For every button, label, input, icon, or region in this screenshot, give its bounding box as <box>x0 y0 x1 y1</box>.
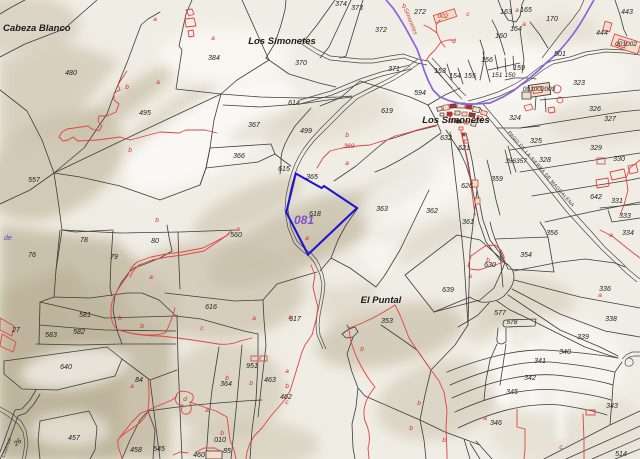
svg-text:b: b <box>417 400 421 407</box>
svg-text:333: 333 <box>619 213 631 220</box>
svg-text:557: 557 <box>28 177 41 184</box>
svg-text:583: 583 <box>45 332 57 339</box>
svg-text:a: a <box>483 415 487 422</box>
svg-text:a: a <box>285 368 289 375</box>
svg-text:El Puntal: El Puntal <box>361 295 402 306</box>
svg-text:362: 362 <box>426 208 438 215</box>
svg-text:b: b <box>155 217 159 224</box>
svg-text:b: b <box>249 380 253 387</box>
svg-text:151: 151 <box>492 72 503 79</box>
svg-text:b: b <box>409 425 413 432</box>
svg-text:154: 154 <box>449 73 461 80</box>
svg-text:339: 339 <box>577 334 589 341</box>
svg-text:372: 372 <box>375 27 387 34</box>
svg-text:371: 371 <box>388 66 400 73</box>
svg-text:a: a <box>468 273 472 280</box>
svg-text:b: b <box>220 430 224 437</box>
svg-text:353: 353 <box>381 318 393 325</box>
svg-text:325: 325 <box>530 138 542 145</box>
svg-text:Los Simonetes: Los Simonetes <box>422 115 490 126</box>
svg-text:170: 170 <box>546 16 558 23</box>
svg-text:85: 85 <box>223 448 231 455</box>
svg-text:499: 499 <box>300 128 312 135</box>
svg-text:b: b <box>402 3 406 10</box>
svg-text:324: 324 <box>509 115 521 122</box>
svg-text:010: 010 <box>214 437 226 444</box>
svg-text:338: 338 <box>605 316 617 323</box>
svg-text:a: a <box>288 314 292 321</box>
svg-text:615: 615 <box>278 166 290 173</box>
svg-text:356357: 356357 <box>505 158 527 165</box>
svg-text:a: a <box>149 274 153 281</box>
svg-text:621: 621 <box>458 145 470 152</box>
svg-text:463: 463 <box>264 377 276 384</box>
svg-text:642: 642 <box>590 194 602 201</box>
svg-text:a: a <box>205 407 209 414</box>
svg-text:640: 640 <box>60 364 72 371</box>
svg-text:de: de <box>4 235 12 242</box>
svg-text:577: 577 <box>494 310 507 317</box>
svg-text:165: 165 <box>520 7 532 14</box>
svg-text:365: 365 <box>306 174 318 181</box>
svg-text:639: 639 <box>442 287 454 294</box>
svg-text:163: 163 <box>500 9 512 16</box>
svg-text:160: 160 <box>495 33 507 40</box>
svg-text:327: 327 <box>604 116 617 123</box>
svg-text:328: 328 <box>539 157 551 164</box>
svg-text:444: 444 <box>596 30 608 37</box>
svg-text:618: 618 <box>309 211 321 218</box>
svg-text:582: 582 <box>73 329 85 336</box>
svg-text:001002: 001002 <box>615 41 637 48</box>
svg-text:84: 84 <box>135 377 143 384</box>
svg-text:356: 356 <box>546 230 558 237</box>
svg-text:a: a <box>598 292 602 299</box>
svg-text:159: 159 <box>513 65 525 72</box>
svg-text:457: 457 <box>68 435 81 442</box>
svg-text:b: b <box>118 315 122 322</box>
svg-text:a: a <box>211 35 215 42</box>
svg-text:480: 480 <box>65 70 77 77</box>
svg-text:369: 369 <box>344 143 355 150</box>
svg-text:b: b <box>140 323 144 330</box>
svg-text:354: 354 <box>520 252 532 259</box>
svg-text:a: a <box>153 16 157 23</box>
svg-text:614: 614 <box>288 100 300 107</box>
svg-text:334: 334 <box>622 230 634 237</box>
svg-text:373: 373 <box>351 5 363 12</box>
svg-text:b: b <box>345 132 349 139</box>
svg-text:331: 331 <box>611 198 623 205</box>
svg-text:b: b <box>225 375 229 382</box>
svg-text:594: 594 <box>414 90 426 97</box>
svg-text:460: 460 <box>193 452 205 459</box>
svg-text:a: a <box>130 383 134 390</box>
svg-text:951: 951 <box>246 363 258 370</box>
svg-text:d: d <box>183 396 187 403</box>
svg-text:560: 560 <box>230 232 242 239</box>
svg-text:b: b <box>442 437 446 444</box>
svg-text:619: 619 <box>381 108 393 115</box>
svg-text:a: a <box>252 315 256 322</box>
svg-text:632: 632 <box>440 135 452 142</box>
svg-text:a: a <box>609 232 613 239</box>
svg-text:a: a <box>522 21 526 28</box>
svg-text:384: 384 <box>208 55 220 62</box>
svg-text:a: a <box>305 235 309 242</box>
svg-text:b: b <box>128 147 132 154</box>
svg-text:340: 340 <box>559 349 571 356</box>
svg-text:342: 342 <box>524 375 536 382</box>
svg-text:581: 581 <box>79 312 91 319</box>
svg-text:501: 501 <box>554 51 566 58</box>
svg-text:359: 359 <box>491 176 503 183</box>
svg-text:458: 458 <box>130 447 142 454</box>
svg-text:b: b <box>285 383 289 390</box>
svg-text:a: a <box>236 226 240 233</box>
svg-text:d: d <box>452 38 456 45</box>
svg-text:Los Simonetes: Los Simonetes <box>248 36 316 47</box>
svg-text:001002003: 001002003 <box>523 86 556 93</box>
svg-text:343: 343 <box>606 403 618 410</box>
svg-text:495: 495 <box>139 110 151 117</box>
svg-text:374: 374 <box>335 1 347 8</box>
svg-text:370: 370 <box>295 60 307 67</box>
svg-text:616: 616 <box>205 304 217 311</box>
svg-text:b: b <box>360 346 364 353</box>
svg-text:443: 443 <box>621 9 633 16</box>
svg-text:76: 76 <box>28 252 36 259</box>
svg-text:330: 330 <box>613 156 625 163</box>
svg-text:153: 153 <box>434 68 446 75</box>
svg-text:341: 341 <box>534 358 546 365</box>
svg-text:b: b <box>486 257 490 264</box>
svg-text:Cabeza Blanco: Cabeza Blanco <box>3 23 71 34</box>
svg-text:626: 626 <box>461 183 473 190</box>
svg-text:366: 366 <box>233 153 245 160</box>
svg-text:79: 79 <box>110 254 118 261</box>
svg-text:345: 345 <box>506 389 518 396</box>
svg-text:363: 363 <box>376 206 388 213</box>
svg-text:164: 164 <box>510 26 522 33</box>
svg-text:a: a <box>156 79 160 86</box>
svg-text:150: 150 <box>505 72 516 79</box>
svg-text:27: 27 <box>11 327 21 334</box>
svg-text:323: 323 <box>573 80 585 87</box>
svg-text:326: 326 <box>589 106 601 113</box>
svg-text:b: b <box>125 84 129 91</box>
svg-text:156: 156 <box>481 57 493 64</box>
svg-text:272: 272 <box>413 9 426 16</box>
svg-text:361: 361 <box>462 219 474 226</box>
svg-text:364: 364 <box>220 381 232 388</box>
svg-text:346: 346 <box>490 420 502 427</box>
svg-text:514: 514 <box>615 451 627 458</box>
svg-text:329: 329 <box>590 145 602 152</box>
svg-text:545: 545 <box>153 446 165 453</box>
svg-text:578: 578 <box>507 319 518 326</box>
svg-text:a: a <box>345 160 349 167</box>
svg-text:367: 367 <box>248 122 261 129</box>
svg-text:002: 002 <box>438 13 449 20</box>
svg-text:80: 80 <box>151 238 159 245</box>
svg-text:155: 155 <box>464 73 476 80</box>
svg-text:78: 78 <box>80 237 88 244</box>
svg-text:a: a <box>515 7 519 14</box>
